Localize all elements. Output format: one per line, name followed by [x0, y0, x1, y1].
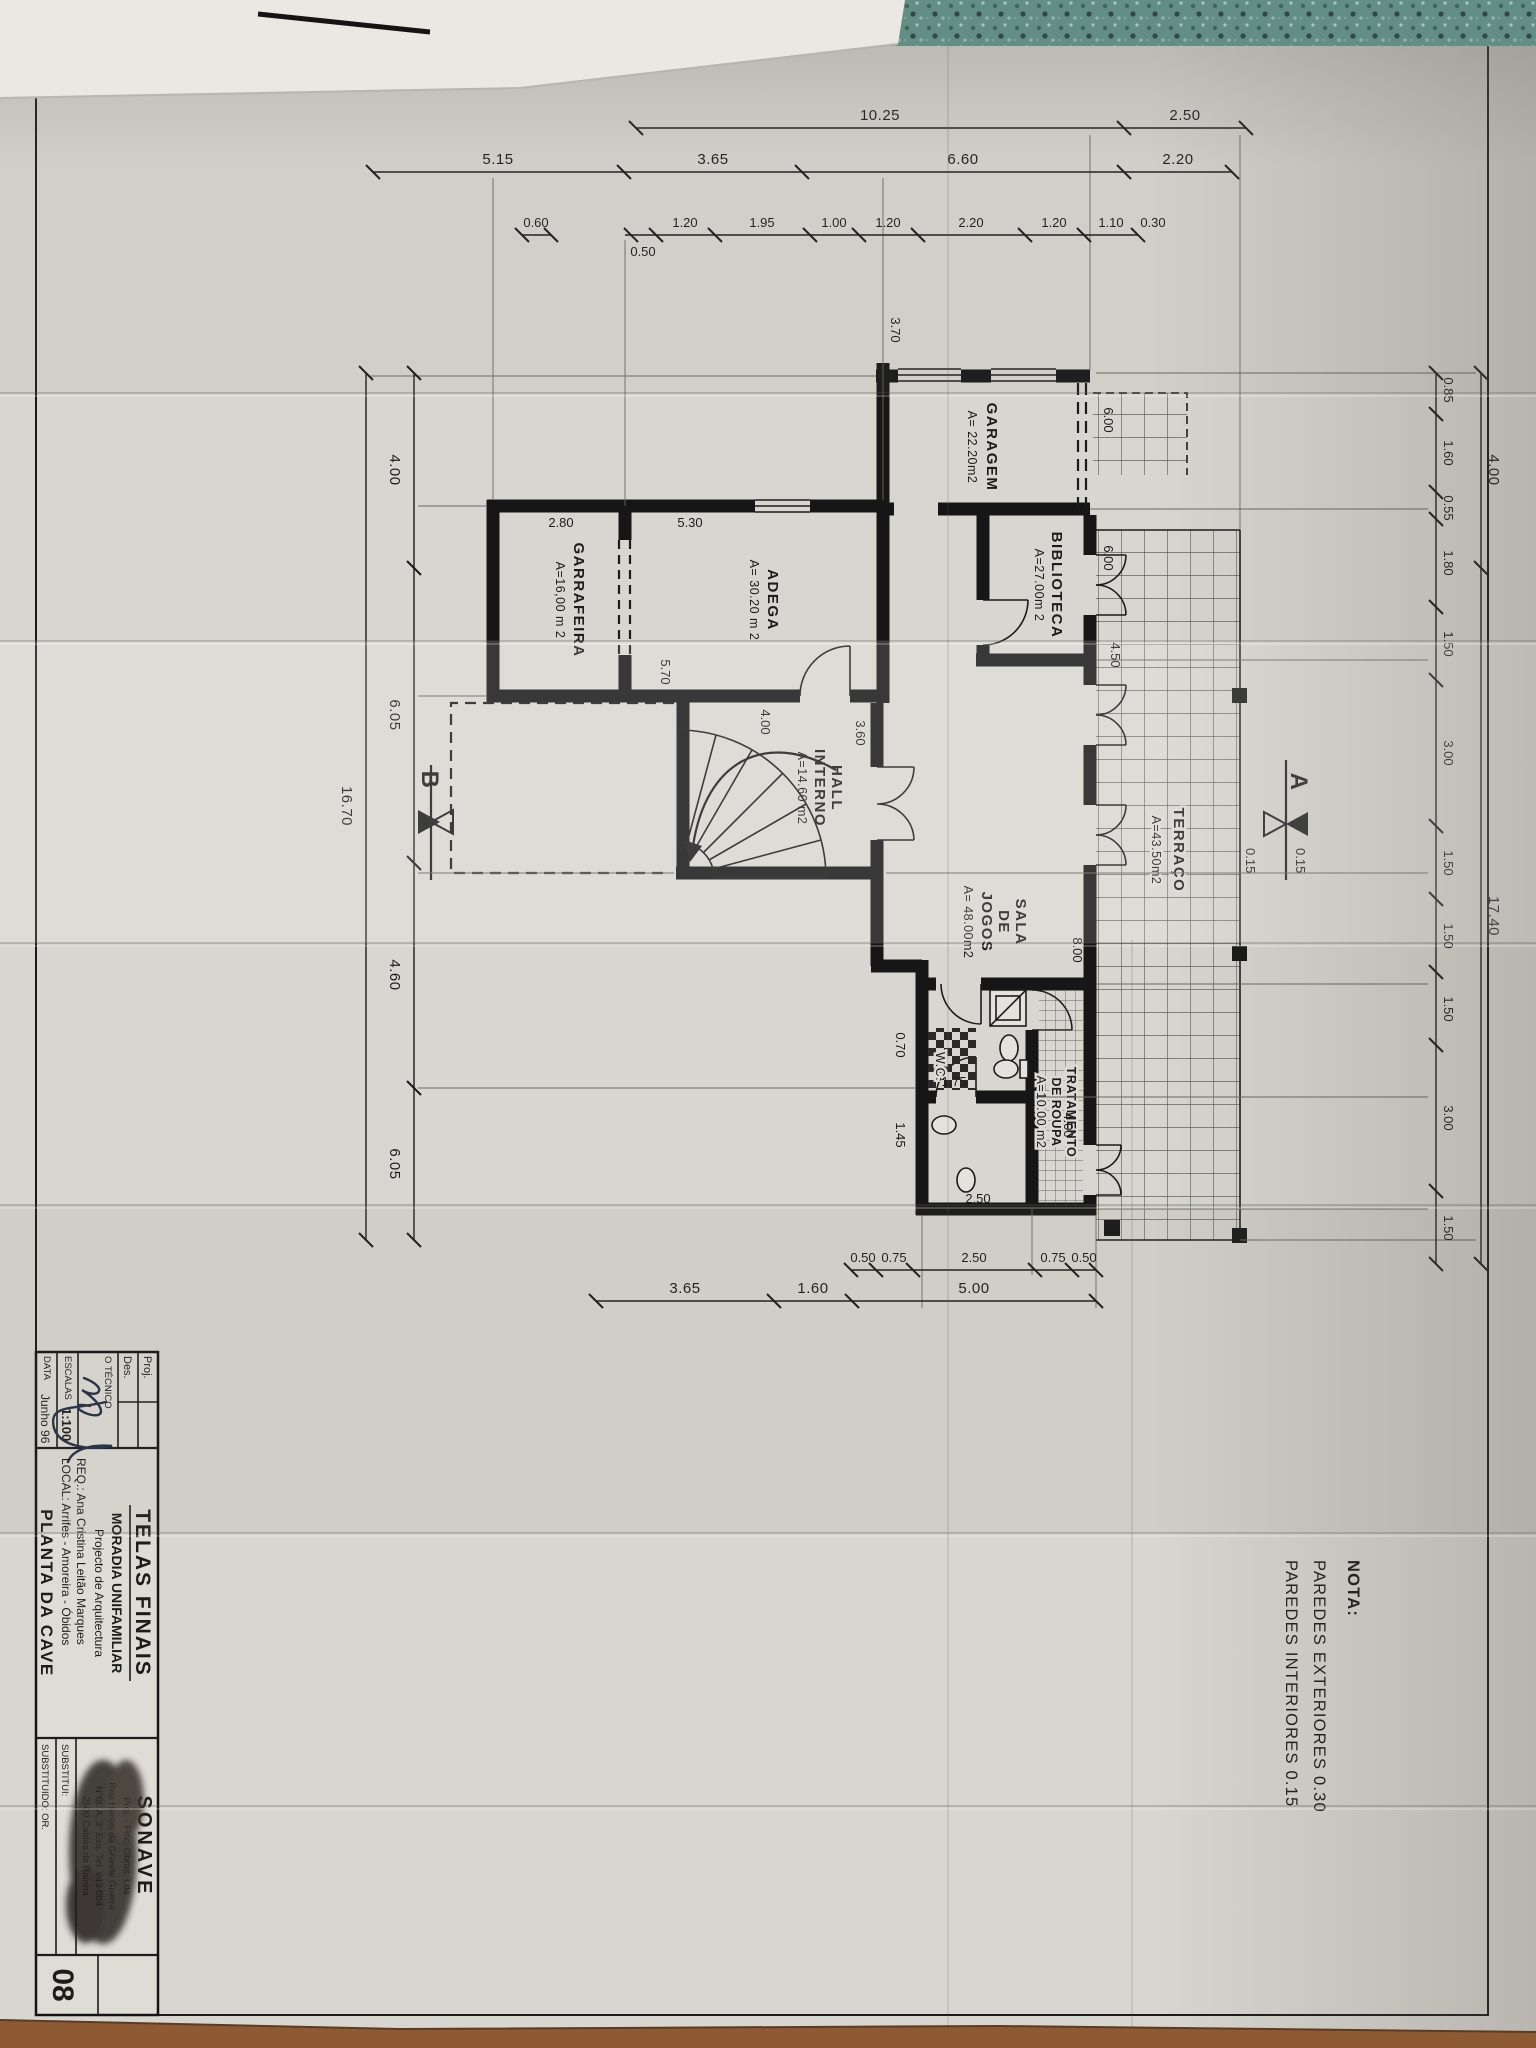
dim-label: 6.00	[1101, 407, 1116, 432]
library-label: BIBLIOTECA	[1048, 532, 1065, 639]
bidet	[932, 1116, 956, 1134]
dim-label: 2.50	[965, 1191, 990, 1206]
telas-title: TELAS FINAIS	[131, 1509, 154, 1677]
dim-label: 1.45	[893, 1122, 908, 1147]
sheet-number: 08	[46, 1968, 79, 2001]
laundry-label-2: DE ROUPA	[1049, 1077, 1063, 1146]
projecto-subtitle: Projecto de Arquitectura	[92, 1529, 106, 1657]
dim-label: 6.05	[386, 1148, 403, 1179]
sink	[1000, 1035, 1018, 1061]
dim-label: 5.30	[677, 515, 702, 530]
dim-label: 2.80	[548, 515, 573, 530]
photographed-blueprint: { "surface": { "top_color": "#5f8b82", "…	[0, 0, 1536, 2048]
dim-label: 4.00	[1061, 1112, 1076, 1137]
substituido-label: SUBSTITUIDO: OR.	[39, 1744, 50, 1830]
garage-area: A= 22.20m2	[965, 411, 979, 484]
moradia-title: MORADIA UNIFAMILIAR	[109, 1513, 125, 1673]
dim-label: 4.00	[386, 454, 403, 485]
dim-label: 0.70	[893, 1032, 908, 1057]
dim-label: 6.00	[1101, 545, 1116, 570]
winecellar-area: A=16,00 m 2	[553, 562, 567, 639]
toilet	[994, 1060, 1018, 1078]
toilet-tank	[1020, 1060, 1028, 1078]
cellar-area: A= 30.20 m 2	[747, 560, 761, 641]
library-area: A=27.00m 2	[1032, 549, 1046, 622]
garage-label: GARAGEM	[983, 403, 1000, 492]
substitui-label: SUBSTITUI:	[59, 1744, 70, 1796]
cellar-label: ADEGA	[764, 569, 781, 631]
sink-2	[957, 1168, 975, 1192]
dim-label: 4.60	[386, 959, 403, 990]
laundry-area: A=10.00 m2	[1034, 1076, 1048, 1149]
dim-label: 1.75	[941, 1074, 966, 1089]
drawing-title: PLANTA DA CAVE	[37, 1509, 56, 1676]
photo-canvas: NOTA: PAREDES EXTERIORES 0.30 PAREDES IN…	[0, 0, 1536, 2048]
